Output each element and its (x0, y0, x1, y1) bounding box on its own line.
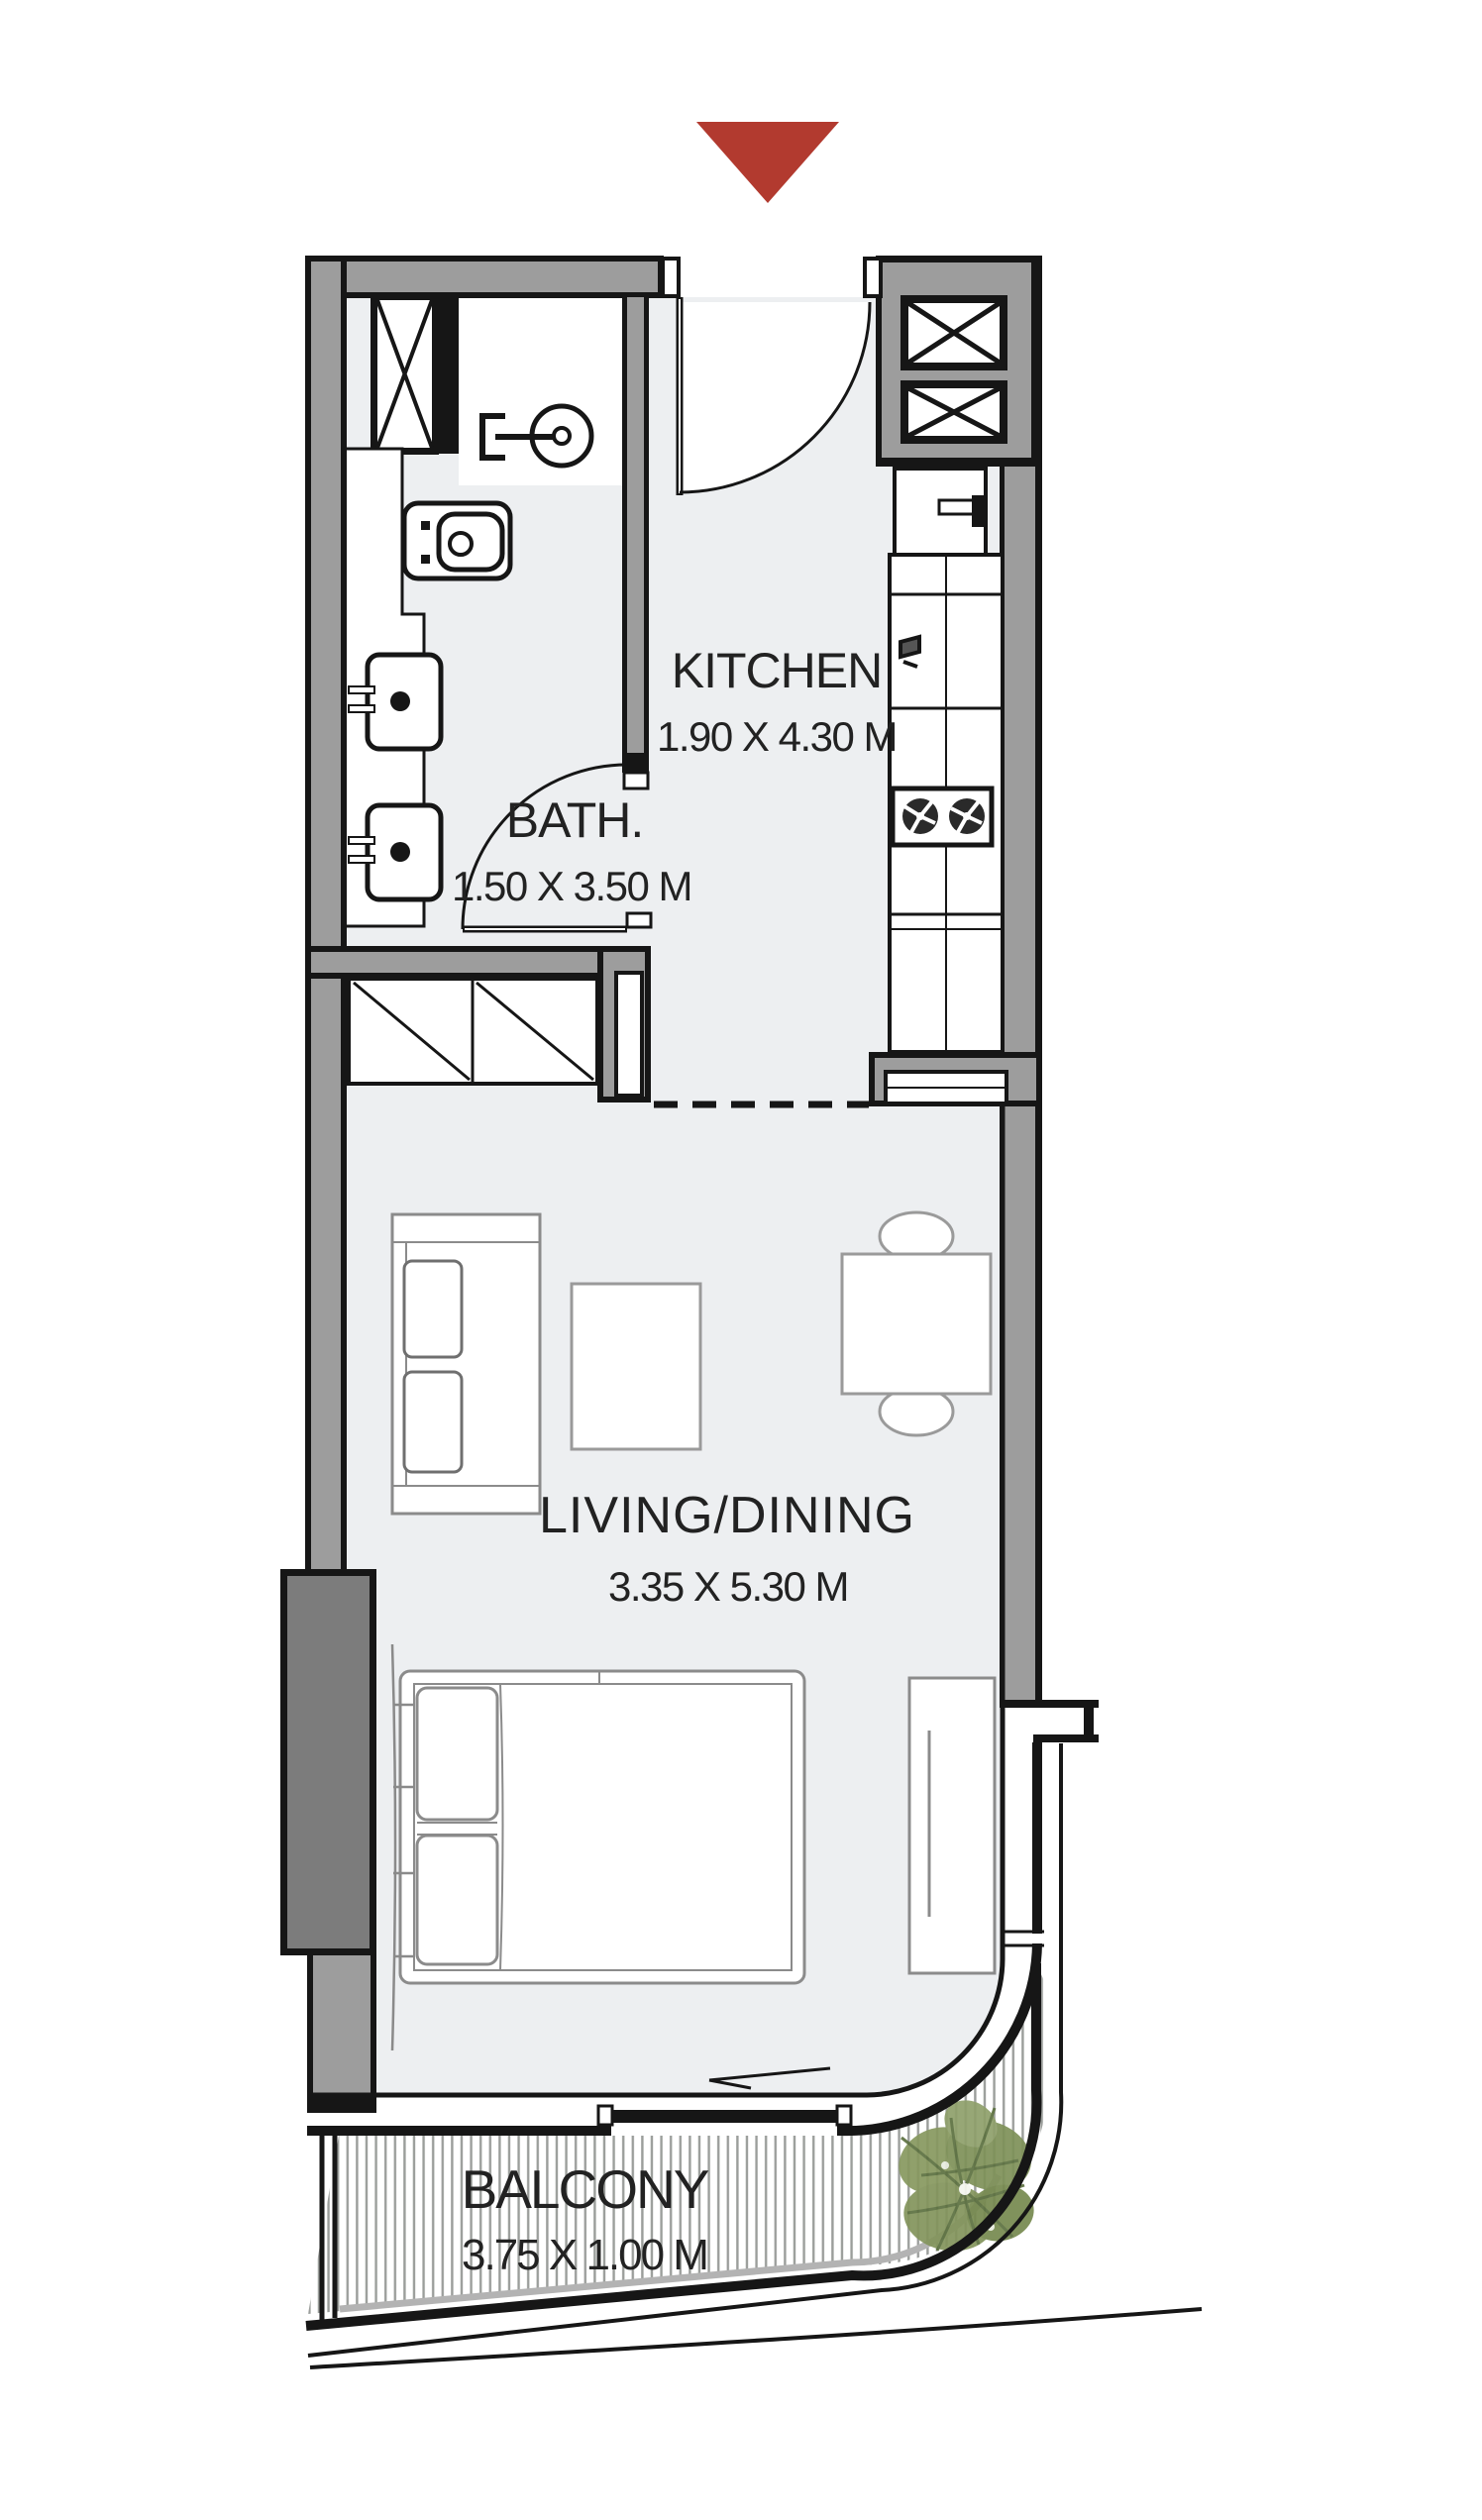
svg-text:BALCONY: BALCONY (462, 2158, 709, 2220)
svg-text:KITCHEN: KITCHEN (672, 643, 882, 698)
svg-text:3.75 X 1.00 M: 3.75 X 1.00 M (462, 2231, 707, 2279)
svg-text:BATH.: BATH. (506, 792, 644, 848)
svg-text:1.90 X 4.30 M: 1.90 X 4.30 M (657, 713, 897, 760)
svg-text:1.50 X 3.50 M: 1.50 X 3.50 M (452, 863, 691, 909)
svg-text:LIVING/DINING: LIVING/DINING (539, 1487, 915, 1544)
svg-text:3.35 X 5.30 M: 3.35 X 5.30 M (608, 1563, 848, 1610)
